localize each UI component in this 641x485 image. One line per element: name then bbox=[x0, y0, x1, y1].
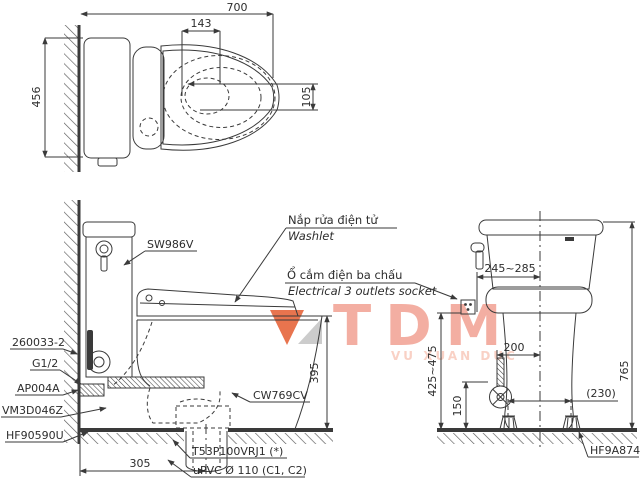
plan-flush-lever bbox=[98, 158, 117, 166]
side-foot-section-hatch bbox=[108, 377, 204, 388]
dim-700: 700 bbox=[227, 1, 248, 14]
dim-230-group: (230) bbox=[508, 387, 618, 401]
svg-text:SW986V: SW986V bbox=[147, 238, 194, 251]
side-wall bbox=[64, 200, 79, 444]
dim-456: 456 bbox=[30, 87, 43, 108]
dim-143: 143 bbox=[191, 17, 212, 30]
plan-view: 700 456 143 105 bbox=[30, 1, 318, 172]
svg-text:HF9A874: HF9A874 bbox=[590, 444, 640, 457]
svg-text:CW769CV: CW769CV bbox=[253, 389, 308, 402]
front-flush-lever bbox=[471, 243, 484, 269]
label-seat: SW986V bbox=[124, 238, 197, 265]
brand-mark bbox=[565, 237, 574, 241]
svg-text:VM3D046Z: VM3D046Z bbox=[2, 404, 63, 417]
dim-105-group: 105 bbox=[188, 84, 318, 110]
dim-230: (230) bbox=[586, 387, 616, 400]
svg-text:G1/2: G1/2 bbox=[32, 357, 58, 370]
dim-700-group: 700 bbox=[81, 1, 273, 78]
plan-button-hidden-circle bbox=[140, 118, 158, 136]
dim-245-285: 245~285 bbox=[484, 262, 535, 275]
callout-socket: Ổ cắm điện ba chấu Electrical 3 outlets … bbox=[285, 266, 457, 299]
front-tank-lid bbox=[479, 220, 603, 235]
stop-valve bbox=[80, 384, 104, 396]
dim-150-group: 150 bbox=[451, 382, 488, 429]
svg-text:260033-2: 260033-2 bbox=[12, 336, 65, 349]
dim-765: 765 bbox=[618, 361, 631, 382]
svg-text:uPVC Ø 110 (C1, C2): uPVC Ø 110 (C1, C2) bbox=[193, 464, 307, 477]
technical-drawing-sheet: TDM VU XUAN DUC 700 456 bbox=[0, 0, 641, 485]
svg-text:AP004A: AP004A bbox=[17, 382, 60, 395]
dim-425-475: 425~475 bbox=[426, 345, 439, 396]
svg-text:HF90590U: HF90590U bbox=[6, 429, 64, 442]
dim-200: 200 bbox=[504, 341, 525, 354]
label-outlet-flange: VM3D046Z bbox=[1, 404, 106, 417]
watermark: TDM VU XUAN DUC bbox=[270, 294, 518, 363]
callout-socket-vi: Ổ cắm điện ba chấu bbox=[287, 266, 402, 282]
plan-tank bbox=[84, 38, 130, 158]
label-bowl: CW769CV bbox=[232, 389, 310, 402]
flush-knob bbox=[96, 241, 112, 257]
plan-bowl-hidden-lines bbox=[140, 56, 275, 140]
dim-105: 105 bbox=[300, 87, 313, 108]
callout-washlet-vi: Nắp rửa điện tử bbox=[288, 213, 378, 227]
dim-150: 150 bbox=[451, 396, 464, 417]
svg-text:T53P100VRJ1 (*): T53P100VRJ1 (*) bbox=[191, 445, 283, 458]
dim-395: 395 bbox=[308, 363, 321, 384]
side-trapway bbox=[147, 388, 230, 428]
plan-washlet-unit bbox=[133, 47, 164, 149]
callout-socket-en: Electrical 3 outlets socket bbox=[288, 284, 437, 298]
front-floor bbox=[437, 430, 637, 444]
callout-washlet-en: Washlet bbox=[288, 229, 334, 243]
dim-305: 305 bbox=[130, 457, 151, 470]
plan-wall bbox=[64, 25, 79, 172]
side-view: 395 305 SW986V 260033-2 G1/2 AP004A bbox=[1, 200, 333, 477]
toilet-installation-drawing: TDM VU XUAN DUC 700 456 bbox=[0, 0, 641, 485]
watermark-logo-orange-triangle bbox=[270, 310, 304, 345]
